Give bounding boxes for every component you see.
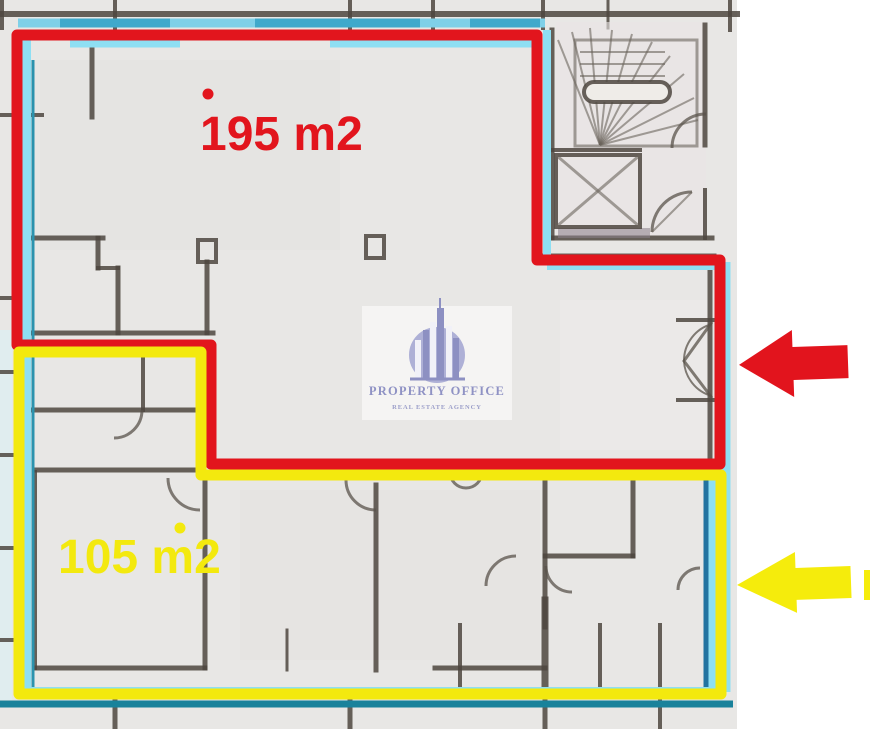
yellow-mark-edge xyxy=(864,570,870,600)
red-dot xyxy=(203,89,214,100)
floor-plan-image: PROPERTY OFFICE REAL ESTATE AGENCY 195 m… xyxy=(0,0,870,729)
red-area-label: 195 m2 xyxy=(200,108,363,161)
staircase xyxy=(552,22,712,238)
watermark-subtitle: REAL ESTATE AGENCY xyxy=(392,404,482,411)
stair-handrail xyxy=(584,82,670,102)
watermark-title: PROPERTY OFFICE xyxy=(369,384,505,398)
scan-shade xyxy=(240,490,540,660)
watermark: PROPERTY OFFICE REAL ESTATE AGENCY xyxy=(362,298,512,420)
scan-edge-tint xyxy=(0,330,12,700)
yellow-area-label: 105 m2 xyxy=(58,531,221,584)
floor-plan-svg: PROPERTY OFFICE REAL ESTATE AGENCY 195 m… xyxy=(0,0,870,729)
